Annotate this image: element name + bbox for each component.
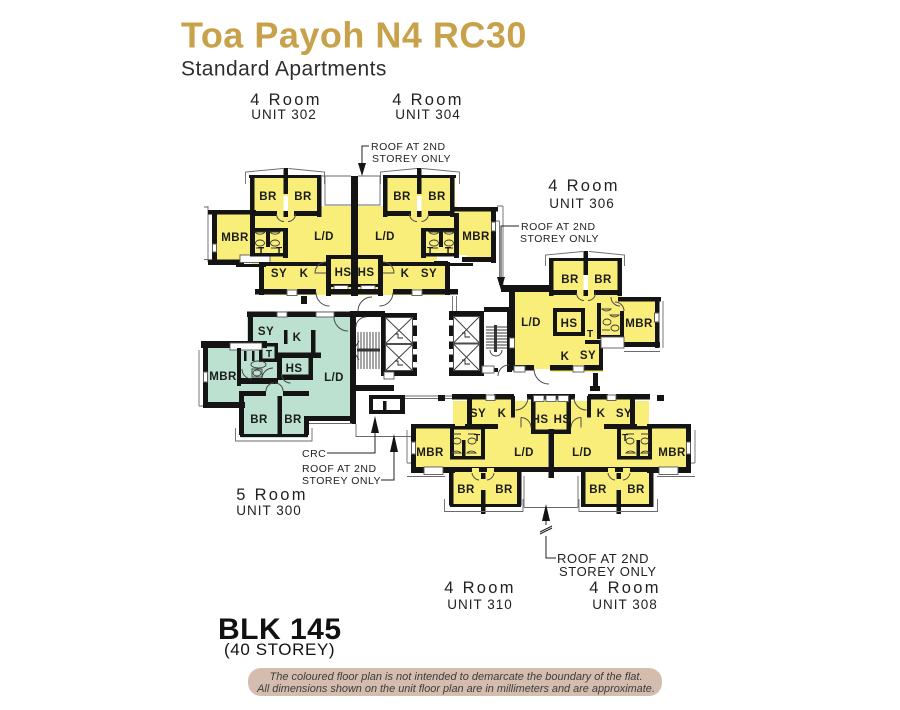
svg-text:The coloured floor plan is not: The coloured floor plan is not intended … xyxy=(269,671,642,683)
svg-text:HS: HS xyxy=(561,318,578,330)
svg-text:All dimensions shown on the un: All dimensions shown on the unit floor p… xyxy=(256,683,655,695)
svg-text:K: K xyxy=(498,408,507,420)
svg-text:STOREY ONLY: STOREY ONLY xyxy=(520,233,599,245)
svg-text:SY: SY xyxy=(421,268,437,280)
svg-text:UNIT 310: UNIT 310 xyxy=(447,597,513,612)
svg-text:MBR: MBR xyxy=(416,447,444,459)
svg-text:T: T xyxy=(445,246,451,257)
svg-text:STOREY ONLY: STOREY ONLY xyxy=(372,153,451,165)
svg-text:ROOF AT 2ND: ROOF AT 2ND xyxy=(302,463,377,475)
svg-text:SY: SY xyxy=(470,408,486,420)
svg-text:UNIT 304: UNIT 304 xyxy=(395,107,461,122)
svg-text:(40 STOREY): (40 STOREY) xyxy=(224,640,335,659)
svg-text:MBR: MBR xyxy=(462,231,490,243)
svg-text:MBR: MBR xyxy=(209,371,237,383)
svg-text:T: T xyxy=(258,246,264,257)
svg-text:BR: BR xyxy=(627,484,645,496)
svg-text:K: K xyxy=(597,408,606,420)
svg-text:HS: HS xyxy=(335,267,352,279)
svg-text:BR: BR xyxy=(495,484,513,496)
svg-text:HS: HS xyxy=(532,414,549,426)
svg-text:UNIT 306: UNIT 306 xyxy=(549,196,615,211)
svg-text:Toa Payoh N4 RC30: Toa Payoh N4 RC30 xyxy=(181,15,527,56)
svg-text:T: T xyxy=(266,349,272,360)
svg-text:5 Room: 5 Room xyxy=(236,486,308,504)
svg-text:UNIT 302: UNIT 302 xyxy=(251,107,317,122)
svg-text:Standard Apartments: Standard Apartments xyxy=(181,58,387,81)
svg-text:L/D: L/D xyxy=(324,372,344,384)
svg-text:BR: BR xyxy=(428,191,446,203)
svg-text:BR: BR xyxy=(589,484,607,496)
svg-text:T: T xyxy=(587,329,593,340)
svg-text:K: K xyxy=(300,268,309,280)
svg-text:BR: BR xyxy=(294,191,312,203)
svg-text:SY: SY xyxy=(258,326,274,338)
svg-text:T: T xyxy=(276,246,282,257)
svg-text:MBR: MBR xyxy=(625,318,653,330)
svg-text:BR: BR xyxy=(259,191,277,203)
svg-text:4 Room: 4 Room xyxy=(548,177,620,195)
svg-text:ROOF AT 2ND: ROOF AT 2ND xyxy=(371,141,446,153)
svg-text:MBR: MBR xyxy=(658,447,686,459)
svg-text:ROOF AT 2ND: ROOF AT 2ND xyxy=(521,221,596,233)
svg-text:K: K xyxy=(561,351,570,363)
svg-text:MBR: MBR xyxy=(221,232,249,244)
svg-text:SY: SY xyxy=(616,408,632,420)
svg-text:4 Room: 4 Room xyxy=(589,579,661,597)
svg-text:CRC: CRC xyxy=(302,448,326,460)
svg-text:SY: SY xyxy=(580,350,596,362)
svg-text:STOREY ONLY: STOREY ONLY xyxy=(559,564,657,579)
svg-text:BR: BR xyxy=(250,414,268,426)
svg-text:BR: BR xyxy=(393,191,411,203)
svg-text:UNIT 300: UNIT 300 xyxy=(236,503,302,518)
svg-text:K: K xyxy=(293,332,302,344)
svg-text:L/D: L/D xyxy=(314,231,334,243)
svg-text:K: K xyxy=(401,268,410,280)
svg-text:STOREY ONLY: STOREY ONLY xyxy=(302,475,381,487)
svg-text:L/D: L/D xyxy=(572,447,592,459)
svg-text:T: T xyxy=(427,246,433,257)
svg-text:BR: BR xyxy=(284,414,302,426)
svg-text:BR: BR xyxy=(594,274,612,286)
svg-text:HS: HS xyxy=(358,267,375,279)
svg-text:HS: HS xyxy=(286,363,303,375)
svg-text:L/D: L/D xyxy=(521,317,541,329)
svg-text:4 Room: 4 Room xyxy=(444,579,516,597)
svg-text:BR: BR xyxy=(561,274,579,286)
svg-text:BR: BR xyxy=(457,484,475,496)
svg-text:L/D: L/D xyxy=(514,447,534,459)
svg-text:L/D: L/D xyxy=(375,231,395,243)
svg-text:T: T xyxy=(474,433,480,444)
svg-text:T: T xyxy=(622,433,628,444)
svg-text:SY: SY xyxy=(271,268,287,280)
svg-text:UNIT 308: UNIT 308 xyxy=(592,597,658,612)
svg-text:HS: HS xyxy=(554,414,571,426)
